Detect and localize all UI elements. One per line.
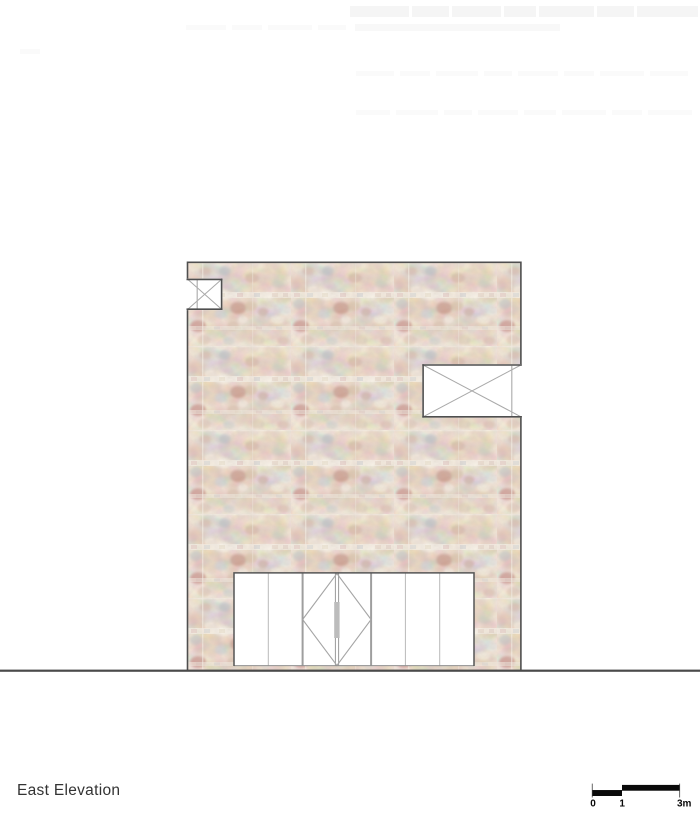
svg-text:0: 0 xyxy=(590,799,596,810)
svg-text:3m: 3m xyxy=(677,799,692,810)
svg-text:East Elevation: East Elevation xyxy=(17,782,120,799)
svg-text:1: 1 xyxy=(619,799,625,810)
